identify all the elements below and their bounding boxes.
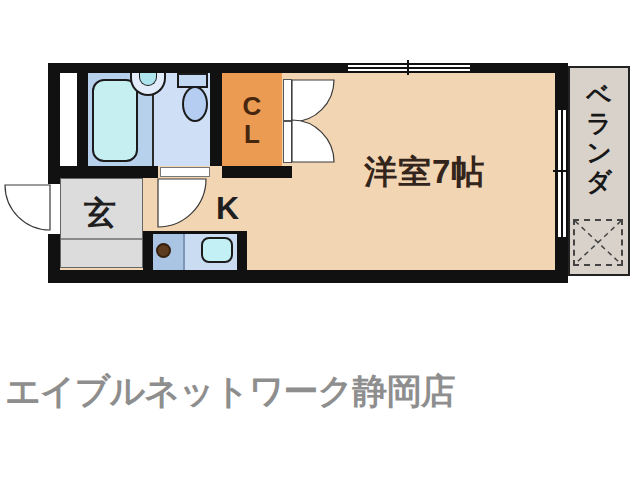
wall-bottom bbox=[48, 270, 568, 283]
entrance-door-swing-icon bbox=[4, 184, 52, 232]
veranda-label-char: ベ bbox=[586, 80, 612, 109]
closet-door-swing-bottom-icon bbox=[291, 119, 335, 163]
main-room-label: 洋室7帖 bbox=[364, 150, 485, 195]
bathroom-doorway bbox=[160, 167, 210, 177]
kitchen-label: K bbox=[216, 190, 239, 227]
window-top-tick bbox=[407, 60, 409, 75]
closet-area: C L bbox=[222, 73, 282, 166]
entrance-step-line bbox=[61, 238, 142, 240]
kitchen-sink-icon bbox=[201, 237, 233, 263]
bathroom-door-swing-icon bbox=[157, 178, 207, 228]
window-top-midline bbox=[348, 67, 470, 69]
wall-bath-closet bbox=[210, 73, 222, 166]
wall-under-bathroom bbox=[48, 166, 158, 178]
stove-burner-icon bbox=[156, 243, 171, 258]
bathroom-wall bbox=[77, 73, 88, 166]
veranda-label-char: ダ bbox=[586, 167, 612, 196]
pipe-space-strip bbox=[60, 73, 77, 166]
window-right-midline bbox=[561, 110, 563, 237]
closet-label-l: L bbox=[244, 120, 260, 148]
closet-label-c: C bbox=[243, 92, 262, 120]
toilet-bowl-icon bbox=[182, 86, 208, 122]
wall-under-closet bbox=[222, 166, 292, 178]
closet-door-swing-top-icon bbox=[291, 79, 335, 123]
store-name-text: エイブルネットワーク静岡店 bbox=[5, 368, 454, 415]
veranda-label-char: ン bbox=[586, 138, 612, 167]
floor-plan-sheet: C L ベ ラ ン ダ bbox=[0, 0, 640, 480]
entrance-label: 玄 bbox=[84, 192, 116, 236]
kitchen-counter-cap bbox=[237, 231, 247, 270]
kitchen-counter-wall-stub bbox=[143, 231, 153, 270]
wall-top bbox=[48, 63, 568, 73]
outdoor-unit-dashed-box-icon bbox=[573, 219, 623, 266]
veranda-label-char: ラ bbox=[586, 109, 612, 138]
bathtub-icon bbox=[92, 79, 138, 162]
